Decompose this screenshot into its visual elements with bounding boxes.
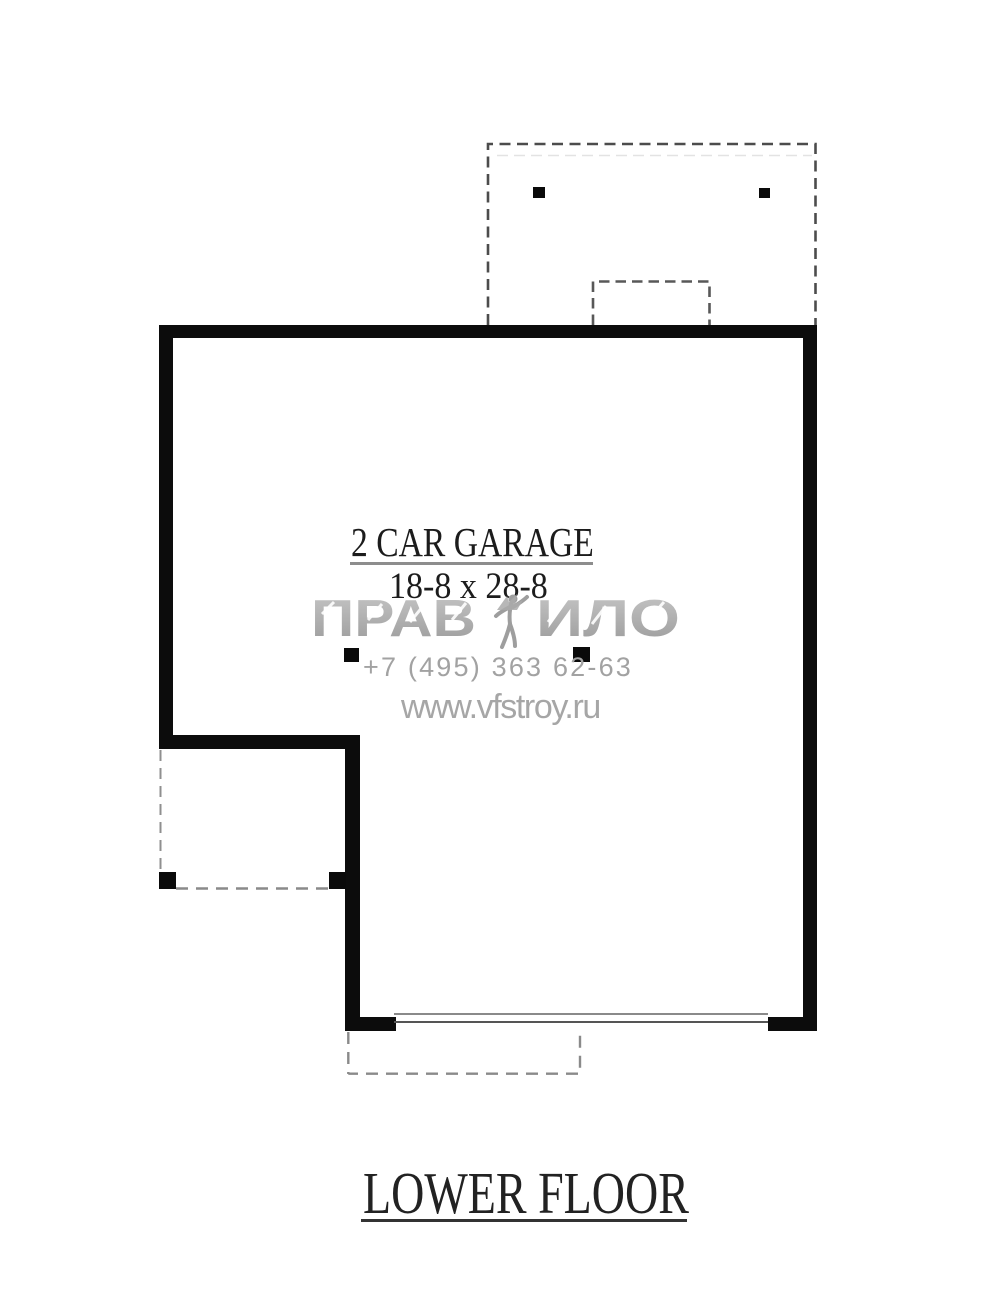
svg-text:ИЛО: ИЛО: [536, 590, 680, 648]
